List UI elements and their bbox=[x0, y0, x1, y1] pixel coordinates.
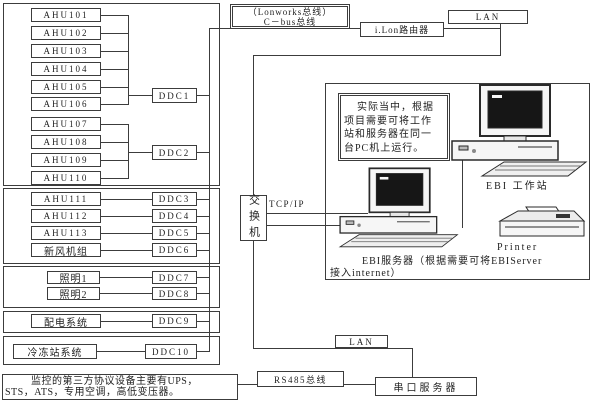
power-distribution-label: 配电系统 bbox=[44, 314, 88, 329]
wire bbox=[101, 250, 152, 251]
lan-to-switch-wire bbox=[253, 55, 501, 56]
network-switch-box: 交换机 bbox=[240, 195, 267, 241]
wire bbox=[101, 178, 128, 179]
chiller-plant-label: 冷冻站系统 bbox=[28, 344, 83, 359]
wire bbox=[197, 233, 209, 234]
ddc8-label: DDC8 bbox=[159, 289, 191, 299]
printer-icon bbox=[492, 205, 588, 243]
wire bbox=[197, 216, 209, 217]
ddc7-label: DDC7 bbox=[159, 273, 191, 283]
ddc9-label: DDC9 bbox=[159, 316, 191, 326]
wire bbox=[128, 95, 152, 96]
ahu113-box: AHU113 bbox=[31, 226, 101, 240]
ahu102-box: AHU102 bbox=[31, 26, 101, 40]
serial-server-box: 串口服务器 bbox=[375, 377, 477, 396]
ebi-workstation-text: EBI 工作站 bbox=[486, 181, 549, 192]
ddc4-box: DDC4 bbox=[152, 209, 197, 223]
ddc5-label: DDC5 bbox=[159, 228, 191, 238]
ahu102-label: AHU102 bbox=[44, 28, 89, 38]
ahu105-box: AHU105 bbox=[31, 80, 101, 94]
wire bbox=[101, 124, 128, 125]
lan-bottom-box: LAN bbox=[335, 335, 388, 348]
ahu109-box: AHU109 bbox=[31, 153, 101, 167]
ahu104-box: AHU104 bbox=[31, 62, 101, 76]
ddc6-box: DDC6 bbox=[152, 243, 197, 257]
ddc6-label: DDC6 bbox=[159, 245, 191, 255]
fresh-air-unit-label: 新风机组 bbox=[44, 243, 88, 258]
wire bbox=[197, 351, 209, 352]
ahu112-box: AHU112 bbox=[31, 209, 101, 223]
ddc9-box: DDC9 bbox=[152, 314, 197, 328]
wire bbox=[197, 199, 209, 200]
wire bbox=[101, 321, 152, 322]
ebi-server-caption: 接入internet） bbox=[330, 264, 402, 279]
ahu103-label: AHU103 bbox=[44, 46, 89, 56]
lan-to-switch-wire bbox=[253, 55, 254, 195]
cbus-trunk-wire bbox=[209, 28, 237, 29]
ebi-server-computer-icon bbox=[328, 162, 466, 254]
ddc1-label: DDC1 bbox=[159, 91, 191, 101]
wire bbox=[197, 277, 209, 278]
rs485-bus-box: RS485总线 bbox=[257, 371, 344, 387]
wire bbox=[100, 277, 152, 278]
fresh-air-unit-box: 新风机组 bbox=[31, 243, 101, 257]
lonworks-label: （Lonworks总线） bbox=[248, 7, 333, 17]
lonworks-cbus-box: （Lonworks总线） C－bus总线 bbox=[232, 6, 348, 27]
ahu103-box: AHU103 bbox=[31, 44, 101, 58]
lighting1-label: 照明1 bbox=[60, 270, 88, 285]
ahu104-label: AHU104 bbox=[44, 64, 89, 74]
ahu110-box: AHU110 bbox=[31, 171, 101, 185]
ahu111-label: AHU111 bbox=[44, 194, 88, 204]
ilon-router-label: i.Lon路由器 bbox=[375, 23, 429, 36]
ddc8-box: DDC8 bbox=[152, 287, 197, 300]
note-line: 站和服务器在同一 bbox=[344, 128, 444, 142]
ddc4-label: DDC4 bbox=[159, 211, 191, 221]
wire bbox=[197, 250, 209, 251]
ddc10-box: DDC10 bbox=[145, 344, 197, 359]
wire bbox=[101, 69, 128, 70]
rs485-bus-label: RS485总线 bbox=[274, 373, 327, 386]
bas-network-diagram: AHU101 AHU102 AHU103 AHU104 AHU105 AHU10… bbox=[0, 0, 600, 400]
ahu111-box: AHU111 bbox=[31, 192, 101, 206]
wire bbox=[101, 142, 128, 143]
wire bbox=[101, 216, 152, 217]
ilon-router-box: i.Lon路由器 bbox=[360, 22, 444, 37]
ddc3-box: DDC3 bbox=[152, 192, 197, 206]
serial-server-label: 串口服务器 bbox=[394, 379, 459, 394]
ddc5-box: DDC5 bbox=[152, 226, 197, 240]
tcpip-label: TCP/IP bbox=[269, 199, 305, 209]
ddc3-label: DDC3 bbox=[159, 194, 191, 204]
third-party-note-box: 监控的第三方协议设备主要有UPS， STS，ATS，专用空调，高低变压器。 bbox=[2, 374, 238, 400]
cbus-trunk-wire bbox=[209, 28, 210, 352]
third-party-note-line1: 监控的第三方协议设备主要有UPS， bbox=[5, 376, 198, 387]
ddc10-label: DDC10 bbox=[152, 347, 190, 357]
lonworks-ilon-wire bbox=[349, 28, 360, 29]
ahu107-box: AHU107 bbox=[31, 117, 101, 131]
switch-lan-down-wire bbox=[253, 241, 254, 348]
lighting2-label: 照明2 bbox=[60, 286, 88, 301]
wire bbox=[101, 104, 128, 105]
ahu107-label: AHU107 bbox=[44, 119, 89, 129]
lan-bottom-wire bbox=[412, 348, 413, 377]
wire bbox=[101, 33, 128, 34]
ddc2-label: DDC2 bbox=[159, 148, 191, 158]
wire bbox=[101, 160, 128, 161]
bank1-collector-wire bbox=[128, 15, 129, 105]
ebi-server-caption-line2: 接入internet） bbox=[330, 268, 402, 279]
lan-top-box: LAN bbox=[448, 10, 528, 24]
tcpip-text: TCP/IP bbox=[269, 199, 305, 209]
note-line: 台PC机上运行。 bbox=[344, 142, 444, 156]
wire bbox=[197, 152, 209, 153]
wire bbox=[197, 321, 209, 322]
ahu110-label: AHU110 bbox=[44, 173, 89, 183]
ahu101-box: AHU101 bbox=[31, 8, 101, 22]
wire bbox=[101, 51, 128, 52]
wire bbox=[128, 152, 152, 153]
network-switch-label: 交换机 bbox=[246, 194, 262, 242]
wire bbox=[197, 95, 209, 96]
wire bbox=[101, 15, 128, 16]
wire bbox=[101, 233, 152, 234]
ahu109-label: AHU109 bbox=[44, 155, 89, 165]
wire bbox=[101, 199, 152, 200]
ahu108-box: AHU108 bbox=[31, 135, 101, 149]
lan-bottom-label: LAN bbox=[349, 337, 374, 347]
wire bbox=[100, 293, 152, 294]
lighting2-box: 照明2 bbox=[47, 287, 100, 300]
ddc1-box: DDC1 bbox=[152, 88, 197, 103]
wire bbox=[197, 293, 209, 294]
ahu112-label: AHU112 bbox=[44, 211, 89, 221]
ilon-lan-wire bbox=[444, 28, 501, 29]
wire bbox=[101, 87, 128, 88]
note-line: 项目需要可将工作 bbox=[344, 115, 444, 129]
note-line: 实际当中，根据 bbox=[344, 101, 444, 115]
ahu113-label: AHU113 bbox=[44, 228, 89, 238]
ahu105-label: AHU105 bbox=[44, 82, 89, 92]
cbus-label: C－bus总线 bbox=[264, 17, 317, 27]
ebi-workstation-label: EBI 工作站 bbox=[486, 177, 549, 192]
chiller-plant-box: 冷冻站系统 bbox=[13, 344, 97, 359]
lan-top-label: LAN bbox=[476, 12, 501, 22]
power-distribution-box: 配电系统 bbox=[31, 314, 101, 328]
ddc2-box: DDC2 bbox=[152, 145, 197, 160]
lighting1-box: 照明1 bbox=[47, 271, 100, 284]
wire bbox=[97, 351, 145, 352]
third-party-note-line2: STS，ATS，专用空调，高低变压器。 bbox=[5, 387, 180, 398]
lan-bottom-wire bbox=[253, 348, 412, 349]
ddc7-box: DDC7 bbox=[152, 271, 197, 284]
lan-drop-wire bbox=[500, 24, 501, 56]
ahu108-label: AHU108 bbox=[44, 137, 89, 147]
ahu101-label: AHU101 bbox=[44, 10, 89, 20]
ahu106-label: AHU106 bbox=[44, 99, 89, 109]
ahu106-box: AHU106 bbox=[31, 97, 101, 111]
